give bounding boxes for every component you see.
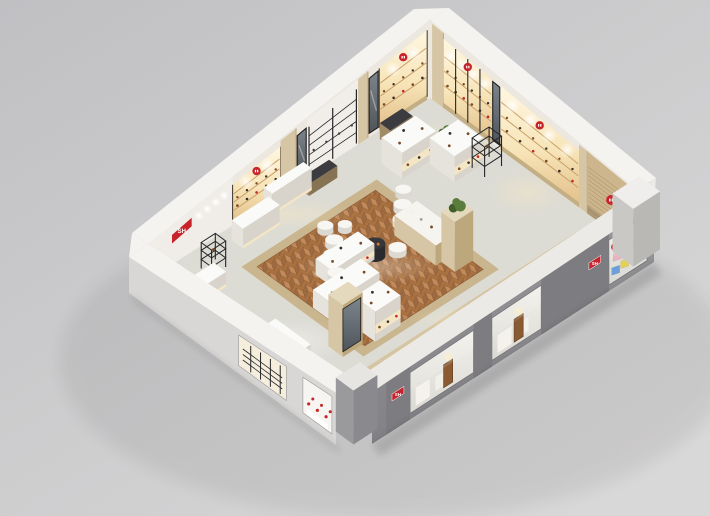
shelf-logo [252,167,260,175]
wall-section-mirror [369,71,378,133]
wall-section-mirror [493,82,500,146]
wall-section-pilaster [579,144,587,213]
shelf-logo [536,121,544,129]
mirror-tower [328,282,362,357]
store-3d-render: SHSHSH [0,0,710,516]
brand-logo-text: SH [178,229,186,235]
brand-logo-text: SH [592,261,598,266]
pouf [338,220,352,234]
brand-logo-text: SH [395,392,401,397]
pouf [317,221,333,236]
plant-column [441,198,473,272]
shelf-logo [464,63,472,71]
shelf-logo [399,53,407,61]
pouf [389,242,407,258]
pouf [395,185,411,200]
wall-section-pilaster [358,71,368,144]
render-viewport: SHSHSH [0,0,710,516]
wall-mirror [493,82,500,146]
wall-section-pilaster [432,24,443,108]
